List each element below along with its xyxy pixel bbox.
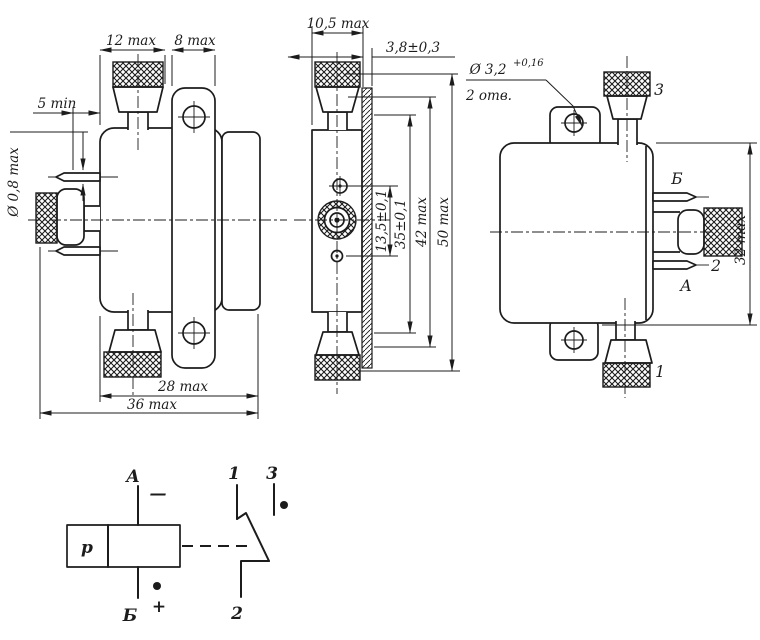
terminal-cap-bottom xyxy=(316,332,359,355)
contact-dot xyxy=(280,501,288,509)
relay-header-block xyxy=(222,132,260,310)
knurled-band-bottom xyxy=(315,355,360,380)
cap-neck xyxy=(84,206,100,231)
knurled-band xyxy=(36,193,57,243)
polarity-dot xyxy=(153,582,161,590)
schematic-2-label: 2 xyxy=(230,604,243,624)
terminal-3-label: 3 xyxy=(654,81,664,99)
armature xyxy=(237,513,269,561)
thumb-cap xyxy=(57,189,84,245)
terminal-neck xyxy=(618,119,637,145)
terminal-cap-bottom xyxy=(104,310,161,377)
dim-text-38: 3,8±0,3 xyxy=(386,40,440,56)
coil-pin-top xyxy=(56,173,100,181)
back-view: Ø 3,2 +0,16 2 отв. 3 1 Б xyxy=(465,56,757,398)
coil-pin-A: 2 А xyxy=(653,257,721,295)
bracket-plate-edge xyxy=(362,88,372,368)
relay-body-back xyxy=(500,143,653,323)
dim-text-42max: 42 max xyxy=(414,197,430,248)
terminal-neck-top xyxy=(328,112,347,130)
relay-technical-drawing: 12 max 8 max 5 min Ø 0,8 max 28 max 36 m… xyxy=(0,0,760,640)
polarity-plus: + xyxy=(152,597,166,617)
schematic-diagram: р А — Б + 1 3 2 xyxy=(67,464,288,626)
dim-text-d08max: Ø 0,8 max xyxy=(6,147,22,218)
mounting-bracket xyxy=(172,88,215,368)
dim-text-28max: 28 max xyxy=(157,379,208,395)
front-view: 12 max 8 max 5 min Ø 0,8 max 28 max 36 m… xyxy=(6,33,287,419)
dim-text-8max: 8 max xyxy=(174,33,216,49)
dim-text-35: 35±0,1 xyxy=(393,199,409,249)
dim-text-36max: 36 max xyxy=(127,397,177,413)
knurled-band xyxy=(104,352,161,377)
dim-text-50max: 50 max xyxy=(436,197,452,247)
coil-pin-B: Б xyxy=(653,170,709,201)
terminal-1: 1 xyxy=(603,321,665,387)
polarity-minus: — xyxy=(150,484,167,504)
dim-text-135: 13,5±0,1 xyxy=(374,190,390,253)
dim-text-105max: 10,5 max xyxy=(307,16,370,32)
schematic-A-label: А xyxy=(124,467,140,487)
knurled-band xyxy=(603,363,650,387)
terminal-A-label: А xyxy=(679,277,692,295)
terminal-B-label: Б xyxy=(670,170,683,188)
contact-2-lead xyxy=(241,561,269,597)
coil-pin-bottom xyxy=(56,247,100,255)
hole-tolerance-text: +0,16 xyxy=(513,58,544,69)
terminal-cap xyxy=(109,330,161,352)
dim-text-12max: 12 max xyxy=(106,33,156,49)
terminal-2-label: 2 xyxy=(710,257,721,275)
pin xyxy=(653,261,696,269)
terminal-neck xyxy=(128,310,148,330)
pin xyxy=(653,193,696,201)
schematic-B-label: Б xyxy=(122,606,138,626)
dim-text-5min: 5 min xyxy=(38,96,77,112)
hole-qty-text: 2 отв. xyxy=(465,88,512,104)
schematic-3-label: 3 xyxy=(266,464,278,484)
schematic-1-label: 1 xyxy=(228,464,240,484)
terminal-cap xyxy=(605,340,652,363)
terminal-1-label: 1 xyxy=(655,363,665,381)
coil-label: р xyxy=(81,538,93,558)
bracket-strip xyxy=(172,88,215,368)
dim-text-32max: 32 max xyxy=(733,215,749,265)
drawing-sheet: 12 max 8 max 5 min Ø 0,8 max 28 max 36 m… xyxy=(0,0,760,640)
terminal-3: 3 xyxy=(604,72,664,145)
hole-dia-text: Ø 3,2 xyxy=(469,62,507,78)
side-view: 10,5 max 3,8±0,3 13,5±0,1 35±0,1 42 max … xyxy=(288,16,460,394)
terminal-cap-top xyxy=(316,87,359,112)
terminal-neck-bottom xyxy=(328,312,347,332)
terminal-neck xyxy=(616,321,635,340)
